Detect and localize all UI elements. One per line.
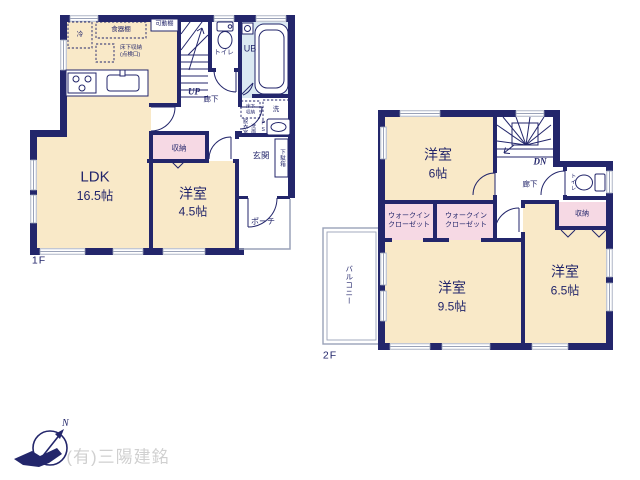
label-fridge: 冷: [77, 31, 84, 39]
compass-n-label: N: [61, 418, 70, 429]
floor-label-2f: 2F: [323, 349, 337, 362]
label-toilet-2f: トイレ: [569, 173, 576, 191]
label-storage-2f: 収納: [575, 211, 589, 220]
floor-plan-1f: LDK 16.5帖 洋室 4.5帖 冷 食器棚 可動棚 床下収納 (点検口) ト…: [0, 0, 320, 270]
label-hallway-1f: 廊下: [204, 94, 219, 103]
label-underfloor-storage: 床下収納 (点検口): [120, 45, 142, 59]
floorplan-page: LDK 16.5帖 洋室 4.5帖 冷 食器棚 可動棚 床下収納 (点検口) ト…: [0, 0, 640, 480]
room-size-yoshitsu-65: 6.5帖: [551, 284, 580, 299]
room-label-yoshitsu-95: 洋室: [438, 279, 466, 297]
floor-plan-2f-graphics: [318, 95, 640, 365]
label-pipe-space: PS: [260, 121, 266, 134]
room-label-ldk: LDK: [80, 169, 109, 188]
label-storage-1f: 収納: [172, 143, 187, 152]
label-movable-shelf: 可動棚: [155, 21, 173, 29]
label-shoe-cabinet: 下駄箱: [278, 149, 285, 167]
label-dressing-room: 脱衣室: [242, 119, 248, 136]
company-name: (有)三陽建銘: [66, 446, 169, 467]
label-balcony: バルコニー: [344, 265, 353, 305]
label-wic-1: ウォークイン クローゼット: [388, 212, 430, 230]
room-size-yoshitsu-6: 6帖: [429, 167, 448, 182]
label-washbasin: 洗面: [250, 124, 256, 135]
label-wic-2: ウォークイン クローゼット: [445, 212, 487, 230]
toilet-icon-1f: [217, 22, 233, 49]
room-size-yoshitsu-45: 4.5帖: [179, 205, 208, 220]
room-label-yoshitsu-6: 洋室: [424, 146, 452, 164]
label-entrance: 玄関: [252, 151, 269, 162]
washbasin-icon: [267, 119, 290, 135]
floor-plan-2f: 洋室 6帖 DN 廊下 トイレ 収納 ウォークイン クローゼット ウォークイン …: [318, 95, 640, 365]
label-laundry: 洗: [273, 106, 280, 114]
label-underfloor-small: 床下 収納: [246, 103, 255, 114]
floor-plan-1f-graphics: [0, 0, 320, 270]
room-size-ldk: 16.5帖: [77, 189, 114, 205]
room-label-yoshitsu-65: 洋室: [551, 263, 579, 281]
label-porch: ポーチ: [251, 217, 275, 227]
room-size-yoshitsu-95: 9.5帖: [438, 300, 467, 315]
room-label-yoshitsu-45: 洋室: [179, 185, 207, 203]
label-stairs-dn: DN: [534, 156, 547, 167]
label-unit-bath: UB: [244, 43, 257, 54]
label-cupboard: 食器棚: [111, 26, 131, 34]
floor-label-1f: 1F: [32, 254, 46, 267]
kitchen-counter-icon: [66, 70, 148, 96]
label-toilet-1f: トイレ: [214, 49, 234, 57]
label-hallway-2f: 廊下: [523, 179, 538, 188]
label-stairs-up: UP: [188, 86, 200, 97]
